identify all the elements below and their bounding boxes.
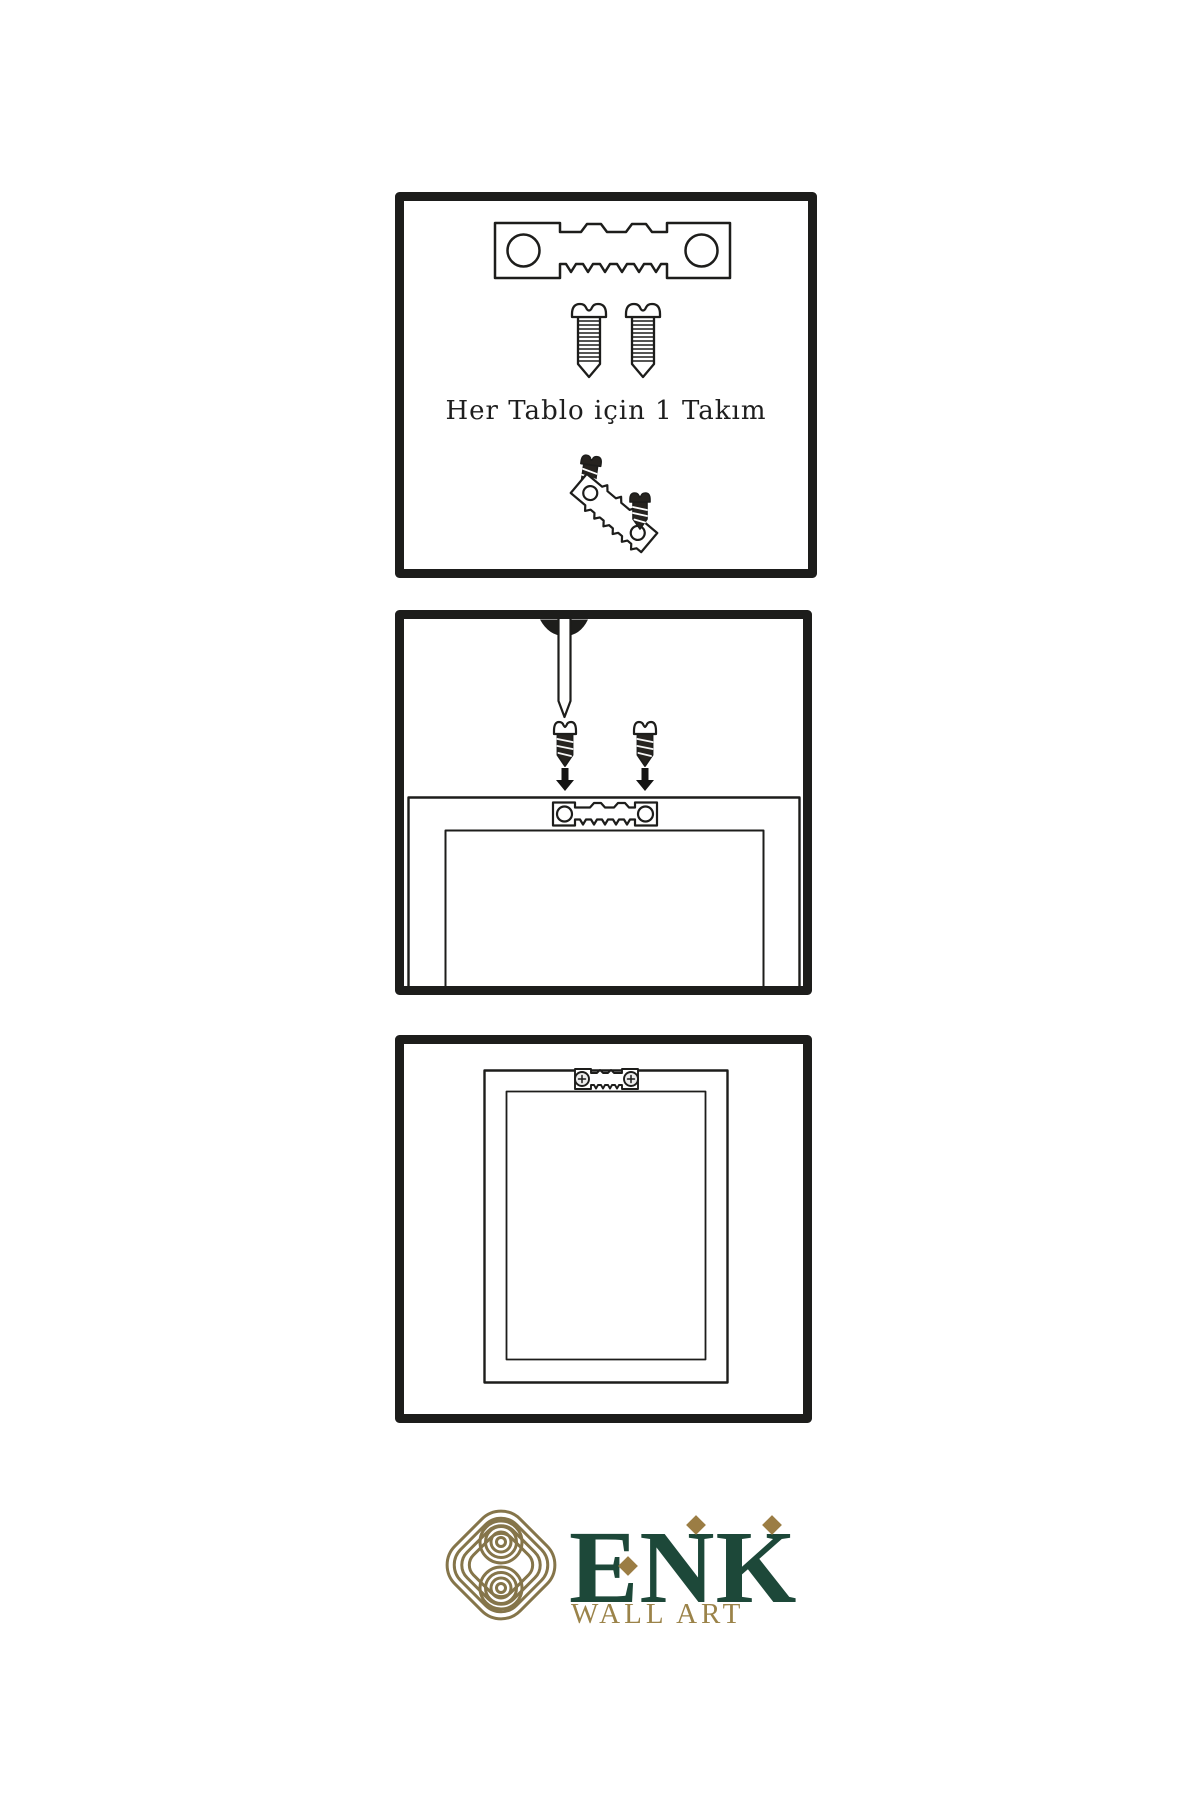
instruction-sheet: Her Tablo için 1 Takım [0, 0, 1200, 1800]
knot-strokes [436, 1500, 566, 1630]
brand-tagline: WALL ART [571, 1598, 744, 1631]
frame-inner-outline [507, 1092, 706, 1360]
frame-inner-outline [446, 831, 764, 996]
knot-logo-icon [436, 1494, 566, 1636]
step-2-drawing [400, 615, 808, 996]
step-1-drawing [400, 197, 813, 574]
sawtooth-hanger-icon [553, 803, 657, 826]
hardware-set-caption: Her Tablo için 1 Takım [395, 396, 817, 426]
step-1-hardware-panel [395, 192, 817, 578]
step-2-mounting-panel [395, 610, 812, 995]
step-3-drawing [400, 1040, 808, 1419]
wall-nail-icon [559, 618, 571, 717]
step-3-hanging-panel [395, 1035, 812, 1423]
